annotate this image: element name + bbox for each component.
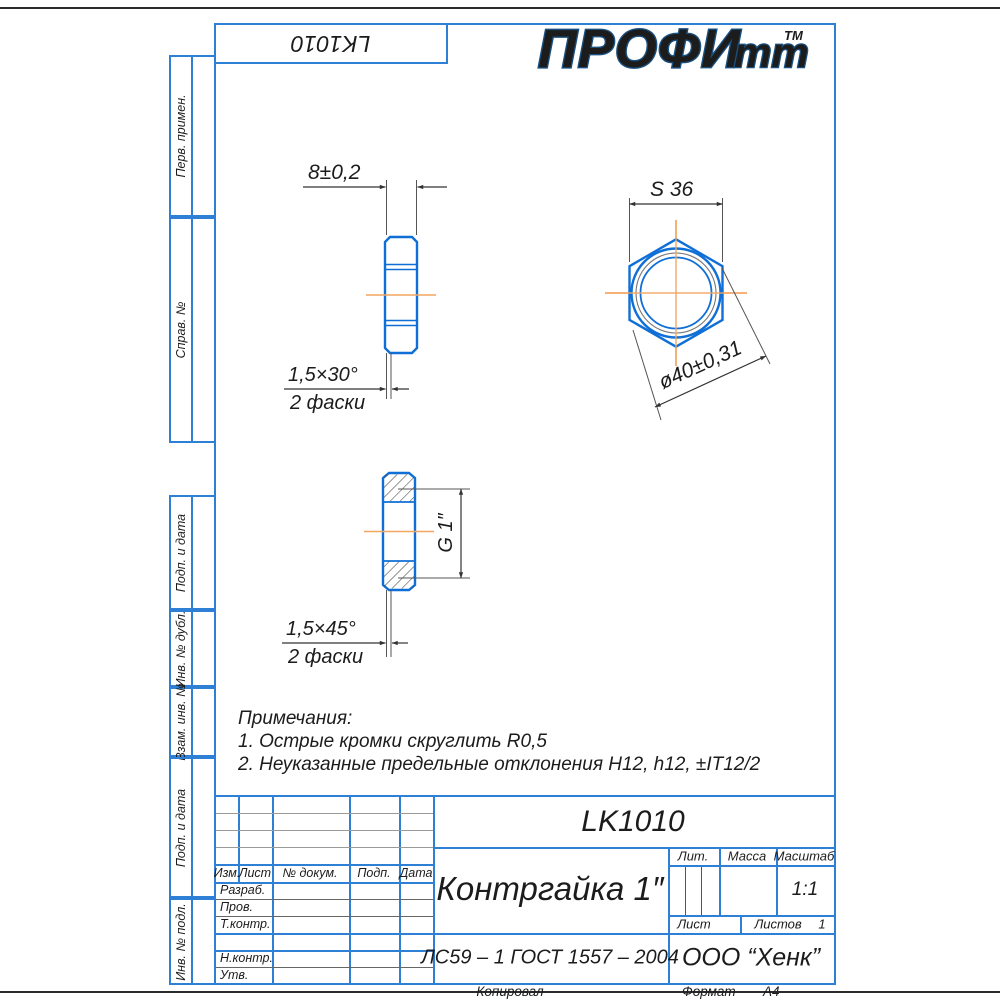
chamfer-note: 1,5×30° xyxy=(288,364,358,386)
tb-rev-header: Подп. xyxy=(357,866,390,880)
hatch-top xyxy=(384,475,414,502)
tb-role: Н.контр. xyxy=(220,951,273,965)
dim-outer-diameter: ø40±0,31 xyxy=(655,336,745,394)
chamfer-count: 2 фаски xyxy=(287,646,363,668)
tb-line-gray xyxy=(216,813,433,814)
tb-rev-header: Изм. xyxy=(214,866,241,880)
tb-rev-header: Лист xyxy=(239,866,271,880)
tb-line-thin xyxy=(685,865,686,915)
footer-format-label: Формат xyxy=(682,984,736,999)
tb-part-name: Контргайка 1″ xyxy=(436,870,663,908)
tb-role: Пров. xyxy=(220,900,253,914)
front-view: S 36 ø40±0,31 xyxy=(605,178,770,420)
dim-thread: G 1″ xyxy=(435,512,457,552)
tb-line-thin xyxy=(701,865,702,915)
side-view: 8±0,2 1,5×30° 2 фаски xyxy=(284,161,447,414)
tb-line-gray xyxy=(216,830,433,831)
tb-line xyxy=(216,933,433,935)
chamfer-note: 1,5×45° xyxy=(286,618,356,640)
tb-line-gray xyxy=(216,847,433,848)
dim-width: 8±0,2 xyxy=(308,161,361,184)
tb-line xyxy=(349,797,351,983)
tb-sheets-label: Листов xyxy=(754,917,801,932)
note-item: 1. Острые кромки скруглить R0,5 xyxy=(238,731,547,753)
tb-rev-header: Дата xyxy=(400,866,433,880)
tb-role: Разраб. xyxy=(220,883,265,897)
tb-role: Т.контр. xyxy=(220,917,270,931)
tb-scale-label: Масштаб xyxy=(774,849,835,864)
tb-rev-header: № докум. xyxy=(282,866,337,880)
hatch-bottom xyxy=(384,562,414,589)
tb-scale-value: 1:1 xyxy=(792,879,818,901)
tb-lit-label: Лит. xyxy=(678,849,708,864)
footer-copied: Копировал xyxy=(430,984,590,999)
tb-sheet-label: Лист xyxy=(677,917,710,932)
dim-across-flats: S 36 xyxy=(650,178,694,201)
section-view: G 1″ 1,5×45° 2 фаски xyxy=(282,473,470,668)
tb-line xyxy=(740,915,742,933)
tb-line xyxy=(668,865,834,867)
drawing-sheet: LK1010 ПРОФИ тт TM Перв. примен. Справ. … xyxy=(0,0,1000,1000)
footer-format-value: А4 xyxy=(763,984,780,999)
tb-line xyxy=(433,933,834,935)
tb-material: ЛС59 – 1 ГОСТ 1557 – 2004 xyxy=(421,947,679,970)
title-block: LK1010 Лит. Масса Масштаб 1:1 Лист Листо… xyxy=(214,795,836,985)
note-item: 2. Неуказанные предельные отклонения H12… xyxy=(238,754,760,776)
tb-sheets-value: 1 xyxy=(818,917,825,932)
tb-mass-label: Масса xyxy=(728,849,766,864)
tb-company: ООО “Хенк” xyxy=(682,944,820,973)
chamfer-count: 2 фаски xyxy=(289,392,365,414)
tb-role: Утв. xyxy=(220,968,248,982)
notes-title: Примечания: xyxy=(238,708,352,730)
tb-line-thin xyxy=(216,967,433,968)
tb-line xyxy=(399,797,401,983)
tb-designation: LK1010 xyxy=(581,805,684,839)
tb-line xyxy=(719,847,721,915)
